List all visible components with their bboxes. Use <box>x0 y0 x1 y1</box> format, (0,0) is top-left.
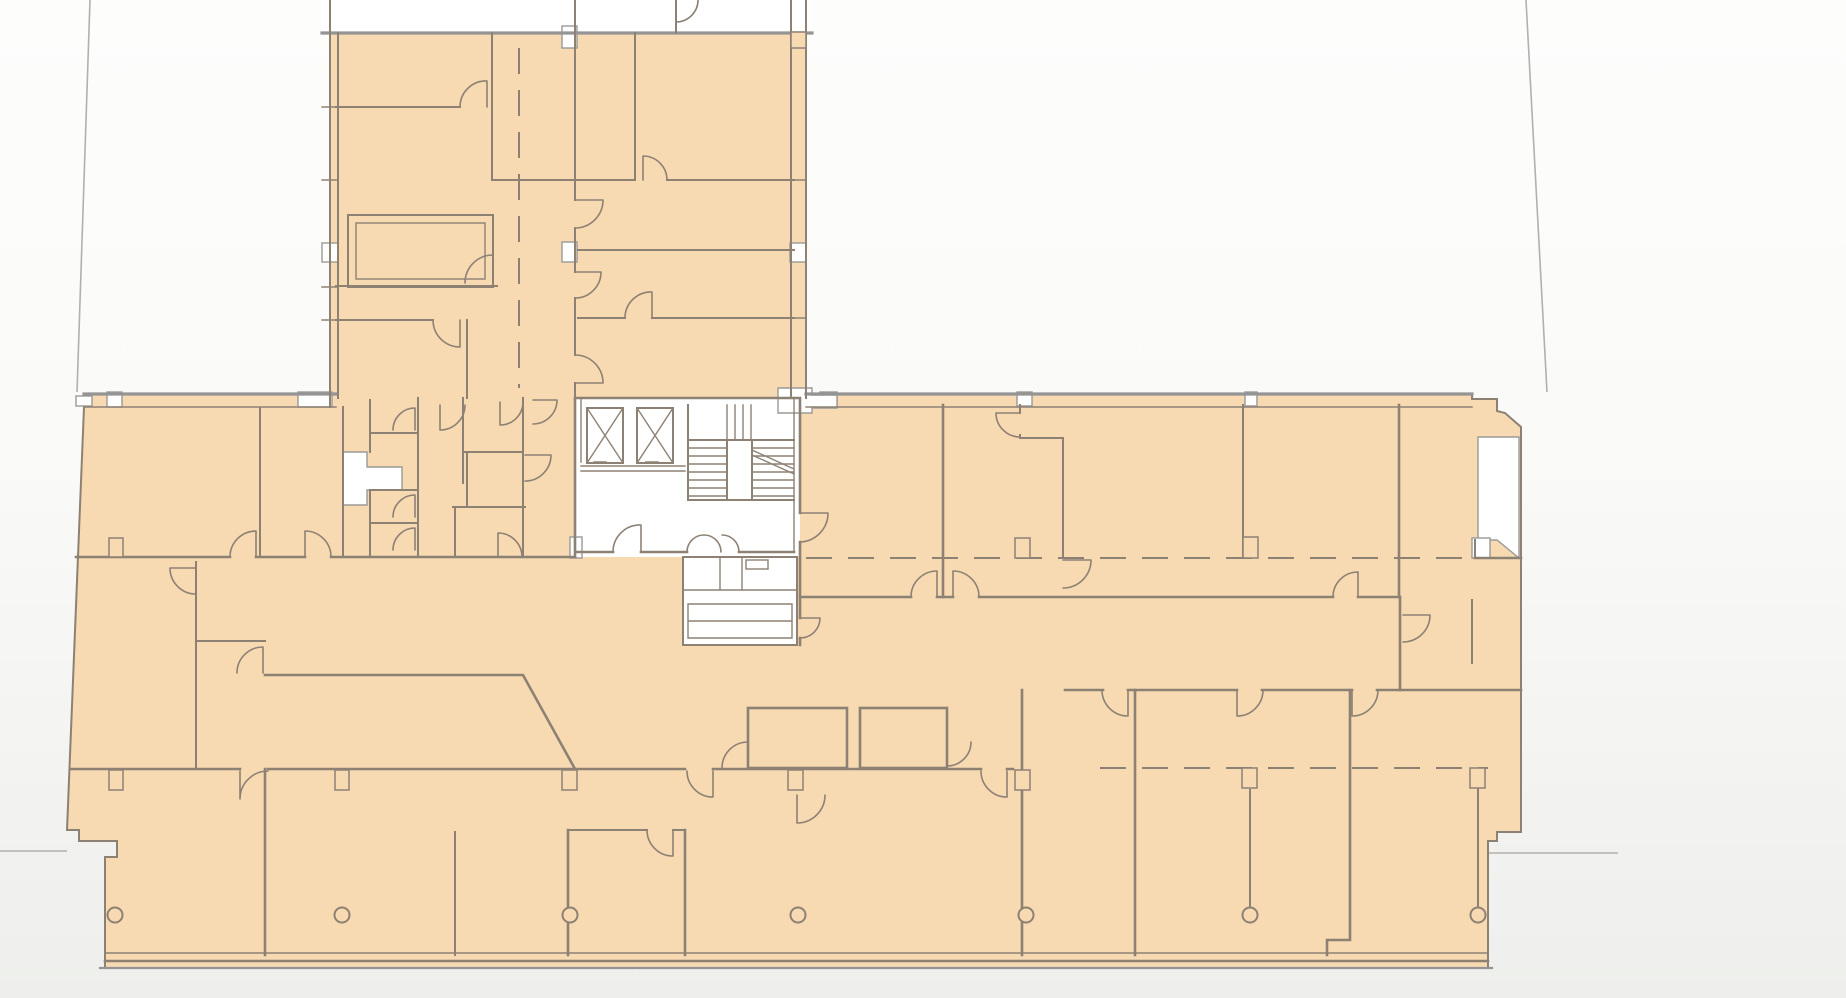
tower-pier <box>791 32 806 48</box>
pilaster <box>1015 538 1030 558</box>
pilaster <box>109 770 123 790</box>
column-circle <box>1471 908 1486 923</box>
corner-step <box>76 396 92 406</box>
tower-wing <box>322 0 812 398</box>
context-line-left <box>77 0 90 392</box>
context-line-right <box>1526 0 1547 392</box>
pilaster <box>562 770 577 790</box>
pilaster <box>109 538 123 557</box>
pilaster <box>788 770 803 790</box>
pilaster <box>335 770 349 790</box>
column-circle <box>335 908 350 923</box>
pilaster <box>1243 537 1258 558</box>
service-block <box>683 557 797 645</box>
pilaster <box>1470 768 1485 788</box>
column-circle <box>563 908 578 923</box>
pilaster <box>1015 770 1030 790</box>
pilaster <box>1242 768 1257 788</box>
column-circle <box>1243 908 1258 923</box>
column-circle <box>791 908 806 923</box>
window-pier <box>790 243 806 262</box>
floor-plan <box>0 0 1846 998</box>
column-circle <box>108 908 123 923</box>
column-circle <box>1019 908 1034 923</box>
